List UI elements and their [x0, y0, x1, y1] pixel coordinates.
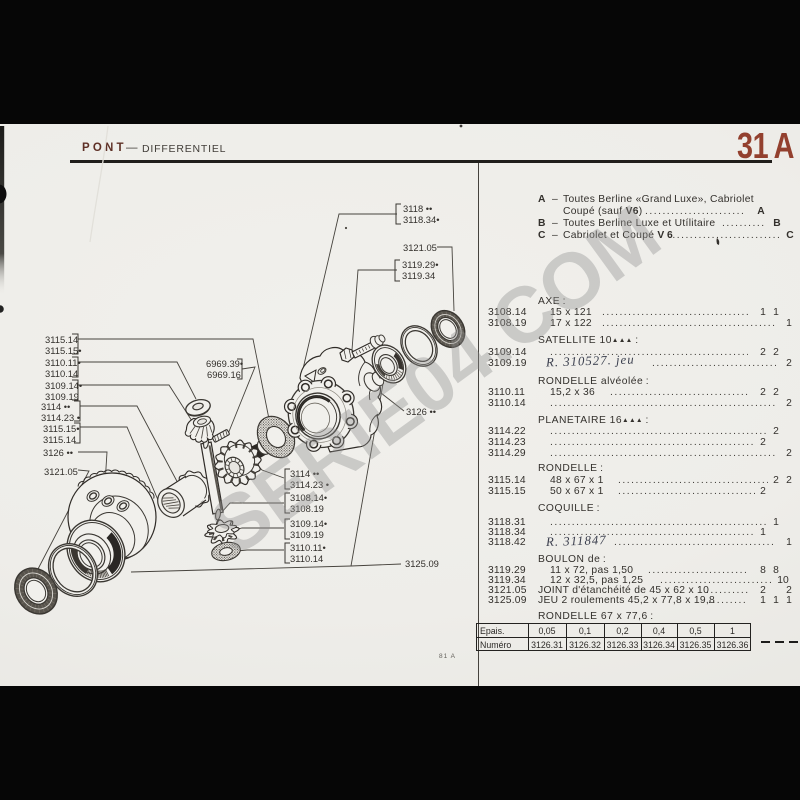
svg-text:3114 ••: 3114 ••: [41, 401, 70, 412]
svg-text:3110.11•: 3110.11•: [290, 542, 326, 553]
svg-text:3115.15•: 3115.15•: [43, 423, 79, 434]
svg-text:3110.14: 3110.14: [290, 553, 323, 564]
svg-text:3109.14•: 3109.14•: [45, 380, 82, 391]
svg-text:3115.14: 3115.14: [45, 334, 78, 345]
svg-text:3118.34•: 3118.34•: [403, 214, 439, 225]
svg-text:3121.05: 3121.05: [403, 242, 437, 253]
svg-text:3125.09: 3125.09: [405, 558, 439, 569]
svg-text:3121.05: 3121.05: [44, 466, 78, 477]
svg-text:6969.16: 6969.16: [207, 369, 241, 380]
svg-text:3119.34: 3119.34: [402, 270, 435, 281]
svg-text:3118 ••: 3118 ••: [403, 203, 432, 214]
svg-text:3126 ••: 3126 ••: [43, 447, 73, 458]
svg-text:3115.14: 3115.14: [43, 434, 76, 445]
svg-text:3110.11•: 3110.11•: [45, 357, 81, 368]
svg-text:6969.39•: 6969.39•: [206, 358, 243, 369]
svg-text:3119.29•: 3119.29•: [402, 259, 438, 270]
